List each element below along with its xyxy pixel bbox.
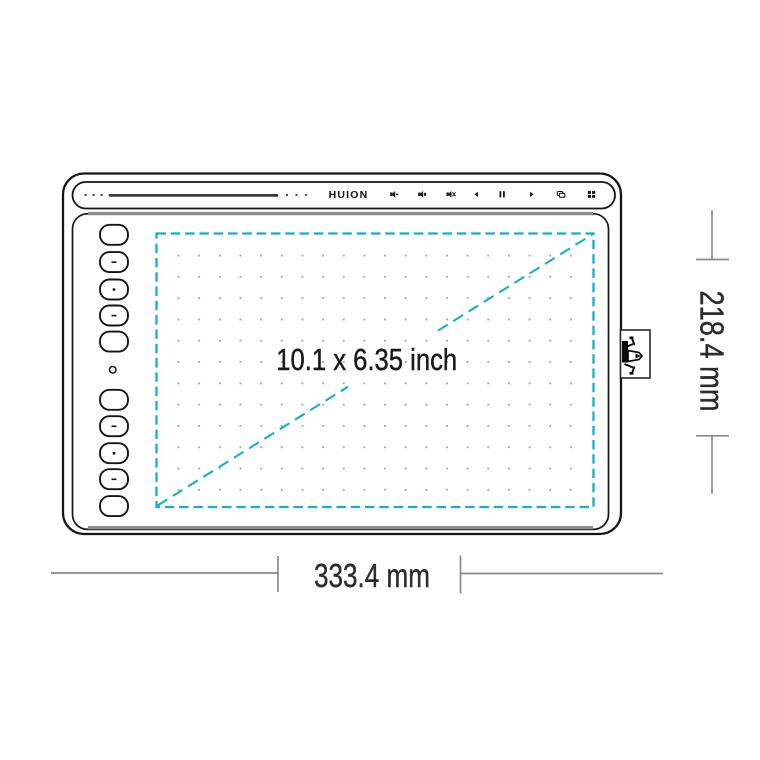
- svg-text:333.4 mm: 333.4 mm: [314, 557, 430, 594]
- svg-text:218.4 mm: 218.4 mm: [694, 291, 731, 412]
- svg-text:10.1 x 6.35 inch: 10.1 x 6.35 inch: [276, 342, 457, 377]
- svg-text:HUION: HUION: [329, 189, 369, 201]
